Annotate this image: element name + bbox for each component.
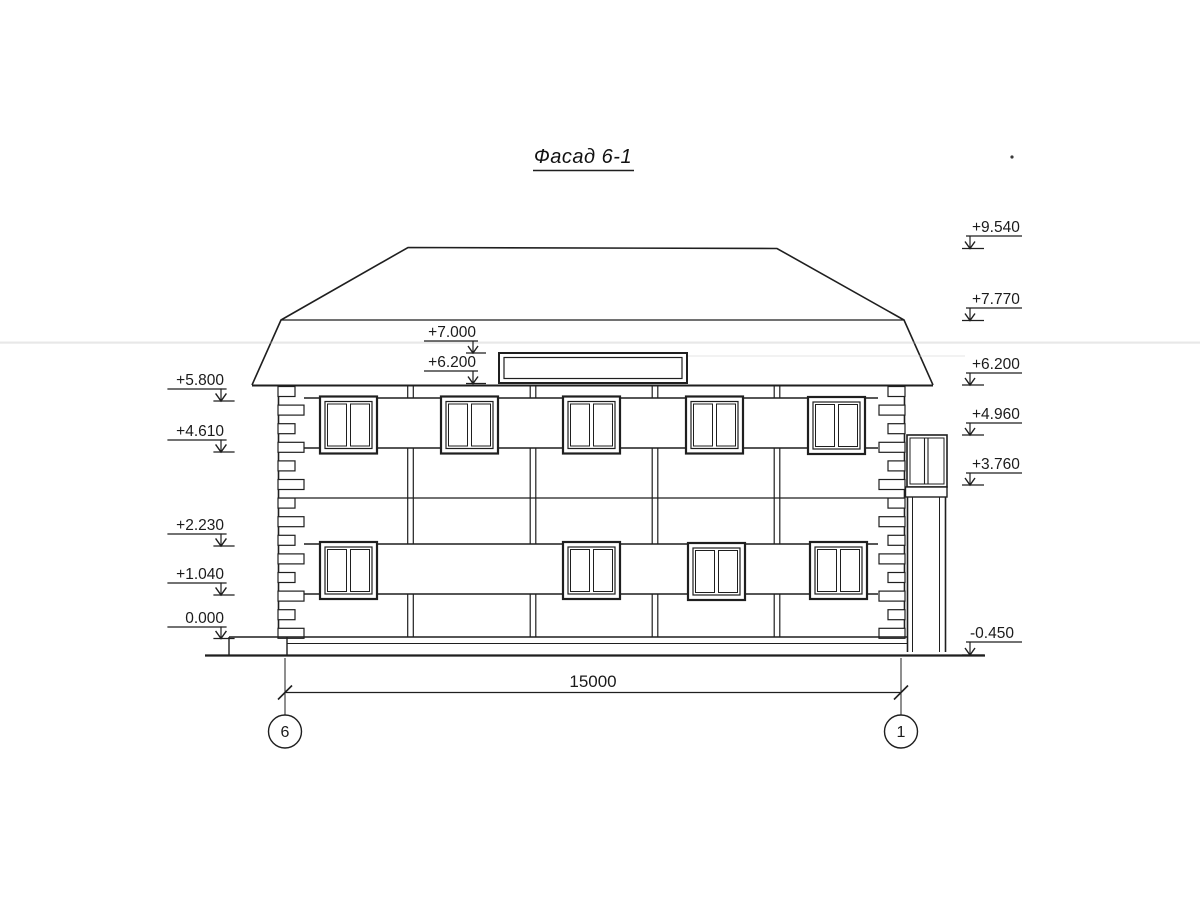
dimension-value: 15000 bbox=[569, 672, 616, 691]
elevation-markers-center: +7.000 +6.200 bbox=[424, 324, 486, 384]
axis-label: 1 bbox=[897, 724, 906, 741]
dimension-chain: 15000 bbox=[278, 658, 908, 715]
facade-drawing-sheet: Фасад 6-1 bbox=[0, 0, 1200, 900]
elevation-marker: +3.760 bbox=[962, 456, 1022, 485]
elevation-markers-left: +5.800 +4.610 +2.230 +1.040 bbox=[168, 372, 234, 639]
elevation-marker: +6.200 bbox=[424, 354, 486, 384]
window bbox=[563, 542, 620, 599]
elevation-marker: +5.800 bbox=[168, 372, 234, 401]
annex-window bbox=[907, 435, 947, 487]
window bbox=[686, 397, 743, 454]
facade-elevation-drawing: Фасад 6-1 bbox=[0, 0, 1200, 900]
lower-floor-windows bbox=[320, 542, 867, 600]
elevation-value: +5.800 bbox=[176, 372, 224, 389]
elevation-value: +4.960 bbox=[972, 406, 1020, 423]
elevation-value: +6.200 bbox=[972, 356, 1020, 373]
elevation-value: +6.200 bbox=[428, 354, 476, 371]
upper-floor-windows bbox=[320, 397, 865, 455]
annex bbox=[906, 435, 948, 652]
axis-label: 6 bbox=[281, 724, 290, 741]
elevation-value: +9.540 bbox=[972, 219, 1020, 236]
elevation-value: +4.610 bbox=[176, 423, 224, 440]
scan-speck bbox=[1010, 155, 1013, 158]
elevation-value: +7.770 bbox=[972, 291, 1020, 308]
elevation-value: +3.760 bbox=[972, 456, 1020, 473]
elevation-value: +1.040 bbox=[176, 566, 224, 583]
elevation-marker: +4.960 bbox=[962, 406, 1022, 435]
elevation-value: +2.230 bbox=[176, 517, 224, 534]
elevation-marker: 0.000 bbox=[168, 610, 234, 639]
annex-column bbox=[908, 497, 946, 652]
annex-band bbox=[906, 487, 948, 497]
quoins-left bbox=[278, 387, 304, 639]
signboard bbox=[499, 353, 687, 383]
axis-bubbles: 6 1 bbox=[269, 715, 918, 748]
window bbox=[320, 397, 377, 454]
window bbox=[688, 543, 745, 600]
drawing-title: Фасад 6-1 bbox=[533, 146, 634, 171]
window bbox=[810, 542, 867, 599]
elevation-marker: +4.610 bbox=[168, 423, 234, 452]
window bbox=[441, 397, 498, 454]
elevation-marker: +9.540 bbox=[962, 219, 1022, 249]
elevation-markers-right: +9.540 +7.770 +6.200 +4.960 bbox=[962, 219, 1022, 655]
axis-bubble: 1 bbox=[885, 715, 918, 748]
elevation-marker: +7.000 bbox=[424, 324, 486, 353]
window bbox=[808, 397, 865, 454]
window bbox=[563, 397, 620, 454]
elevation-marker: +7.770 bbox=[962, 291, 1022, 321]
elevation-marker: +2.230 bbox=[168, 517, 234, 546]
elevation-value: +7.000 bbox=[428, 324, 476, 341]
quoins-right bbox=[879, 387, 905, 639]
scan-streak bbox=[0, 342, 1200, 344]
elevation-marker: +1.040 bbox=[168, 566, 234, 595]
title-text: Фасад 6-1 bbox=[534, 146, 632, 168]
window bbox=[320, 542, 377, 599]
elevation-marker: -0.450 bbox=[962, 625, 1022, 655]
axis-bubble: 6 bbox=[269, 715, 302, 748]
elevation-value: 0.000 bbox=[185, 610, 224, 627]
elevation-value: -0.450 bbox=[970, 625, 1014, 642]
elevation-marker: +6.200 bbox=[962, 356, 1022, 385]
plinth bbox=[229, 637, 908, 655]
